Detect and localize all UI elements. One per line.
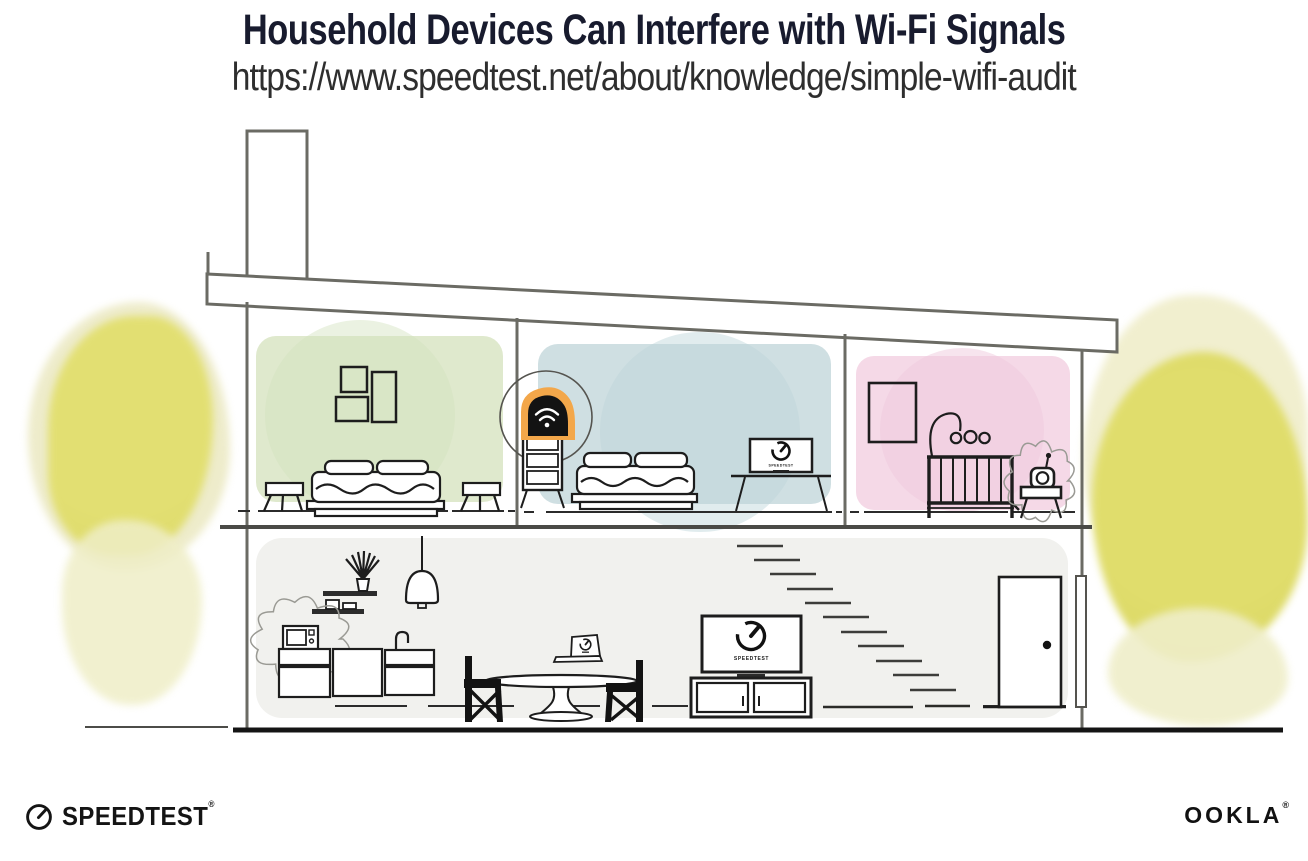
- downspout: [1076, 576, 1086, 707]
- bedroom-tv: SPEEDTEST: [750, 439, 812, 472]
- bed: [572, 453, 697, 509]
- living-tv: SPEEDTEST: [702, 616, 801, 677]
- stool-right: [461, 483, 500, 511]
- ookla-wordmark: OOKLA: [1184, 802, 1282, 828]
- stool-left: [264, 483, 303, 511]
- microwave: [283, 626, 318, 649]
- bedroom-tv-text: SPEEDTEST: [769, 464, 794, 468]
- page-title: Household Devices Can Interfere with Wi-…: [243, 6, 1066, 55]
- infographic-canvas: Household Devices Can Interfere with Wi-…: [0, 0, 1308, 861]
- speedometer-gauge-icon: [24, 802, 54, 832]
- media-cabinet: [691, 678, 811, 717]
- door-knob: [1043, 641, 1051, 649]
- chimney: [247, 131, 307, 288]
- living-room: SPEEDTEST: [691, 616, 811, 717]
- entry-door: [983, 576, 1086, 707]
- living-tv-text: SPEEDTEST: [734, 656, 769, 662]
- speedtest-logo: SPEEDTEST®: [24, 801, 228, 832]
- page-url: https://www.speedtest.net/about/knowledg…: [232, 56, 1076, 100]
- speedtest-wordmark: SPEEDTEST®: [62, 801, 215, 832]
- ookla-logo: OOKLA®: [1184, 802, 1292, 829]
- header: Household Devices Can Interfere with Wi-…: [0, 0, 1308, 100]
- house-illustration: SPEEDTEST: [0, 0, 1308, 861]
- kitchen-cabinets: [279, 649, 434, 697]
- ground: [85, 727, 1283, 730]
